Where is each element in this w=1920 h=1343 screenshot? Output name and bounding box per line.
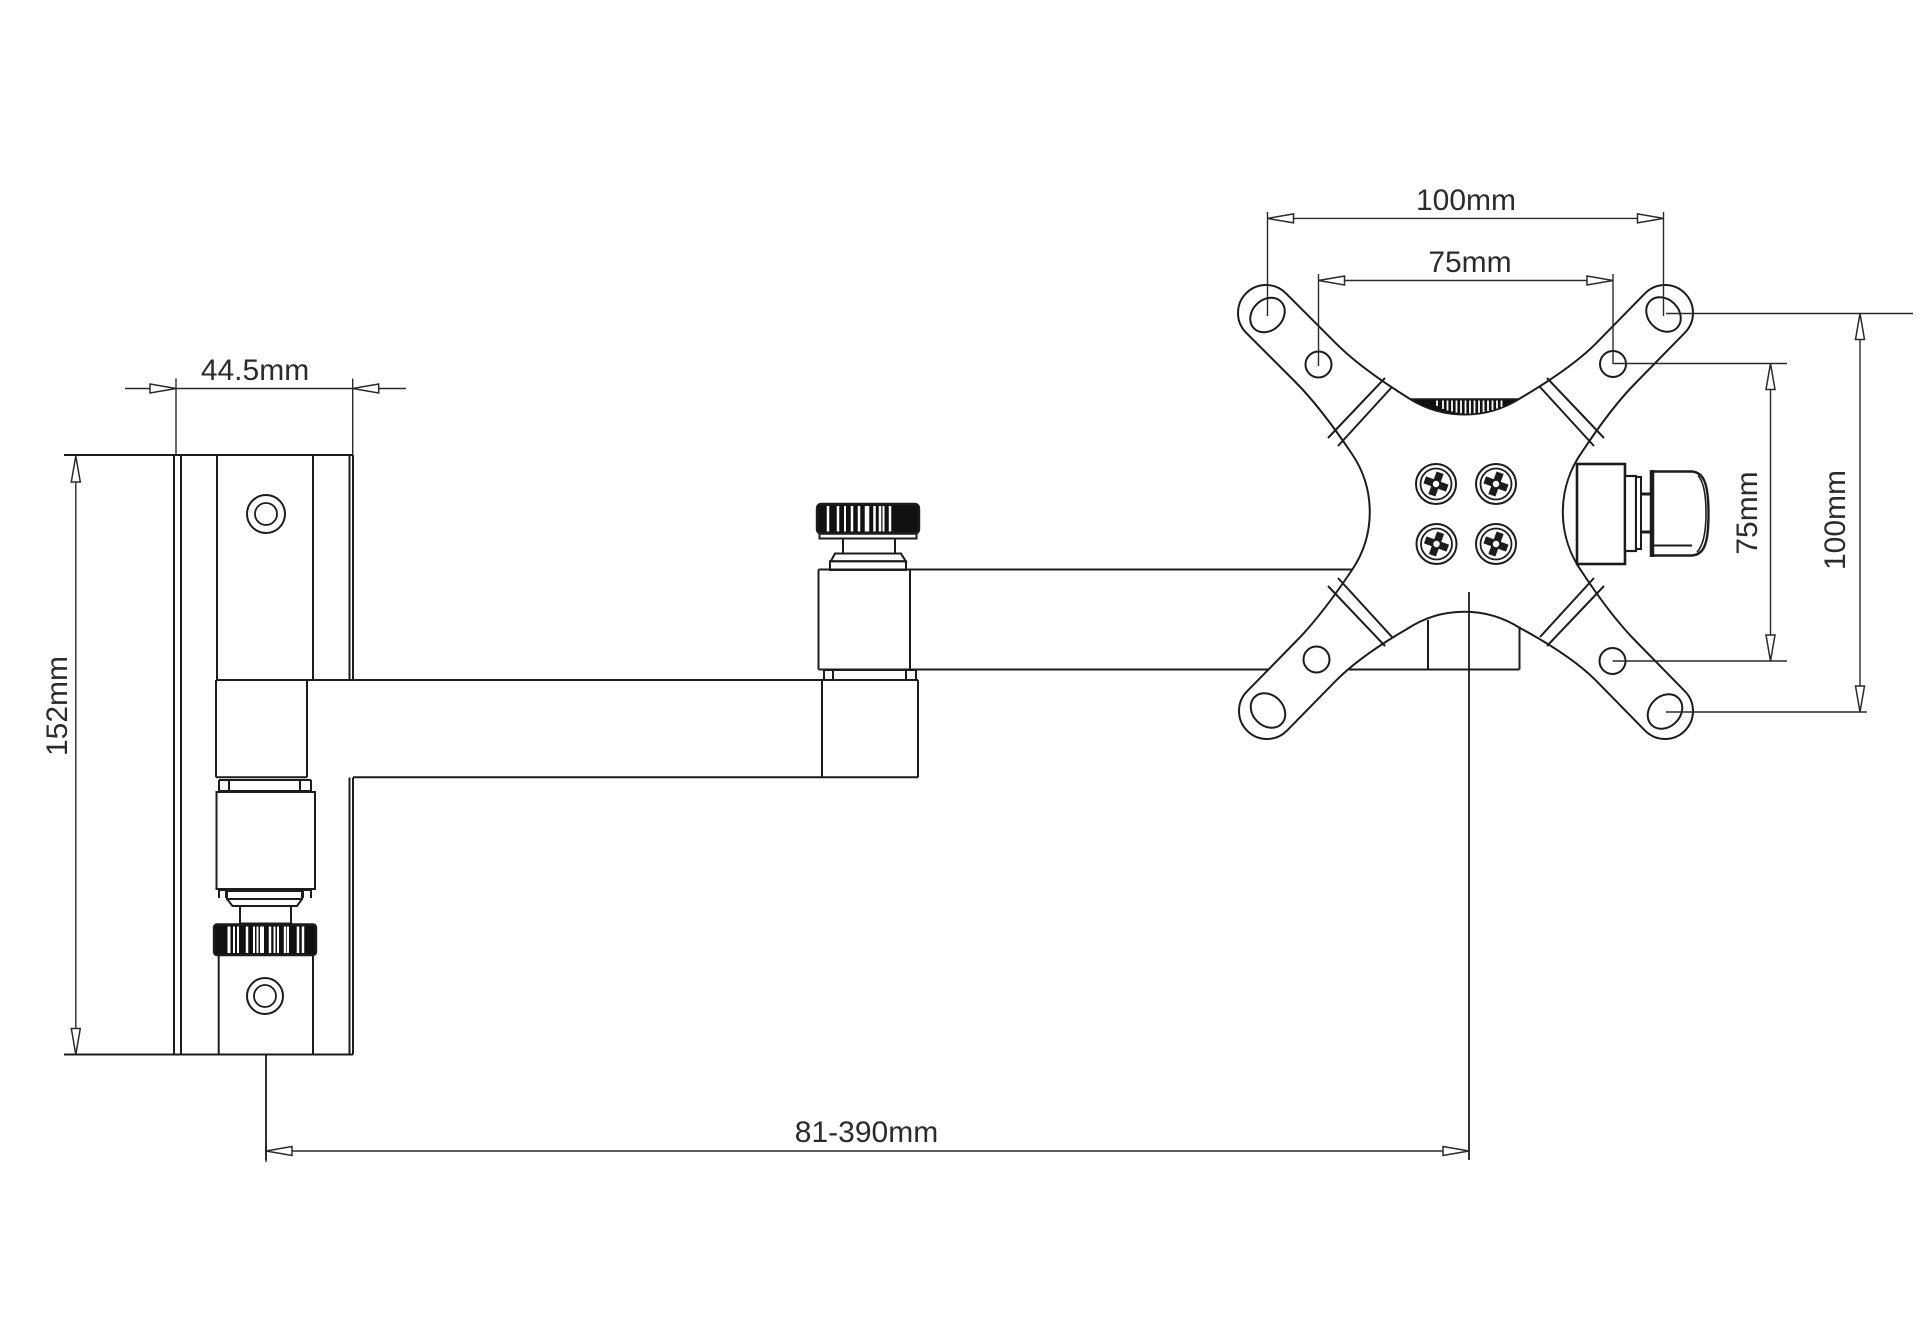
svg-text:100mm: 100mm bbox=[1416, 184, 1516, 217]
svg-text:75mm: 75mm bbox=[1731, 471, 1764, 554]
svg-text:152mm: 152mm bbox=[41, 656, 74, 756]
svg-text:81-390mm: 81-390mm bbox=[795, 1116, 938, 1149]
svg-text:44.5mm: 44.5mm bbox=[201, 354, 309, 387]
svg-text:100mm: 100mm bbox=[1819, 470, 1852, 570]
svg-text:75mm: 75mm bbox=[1428, 246, 1511, 279]
